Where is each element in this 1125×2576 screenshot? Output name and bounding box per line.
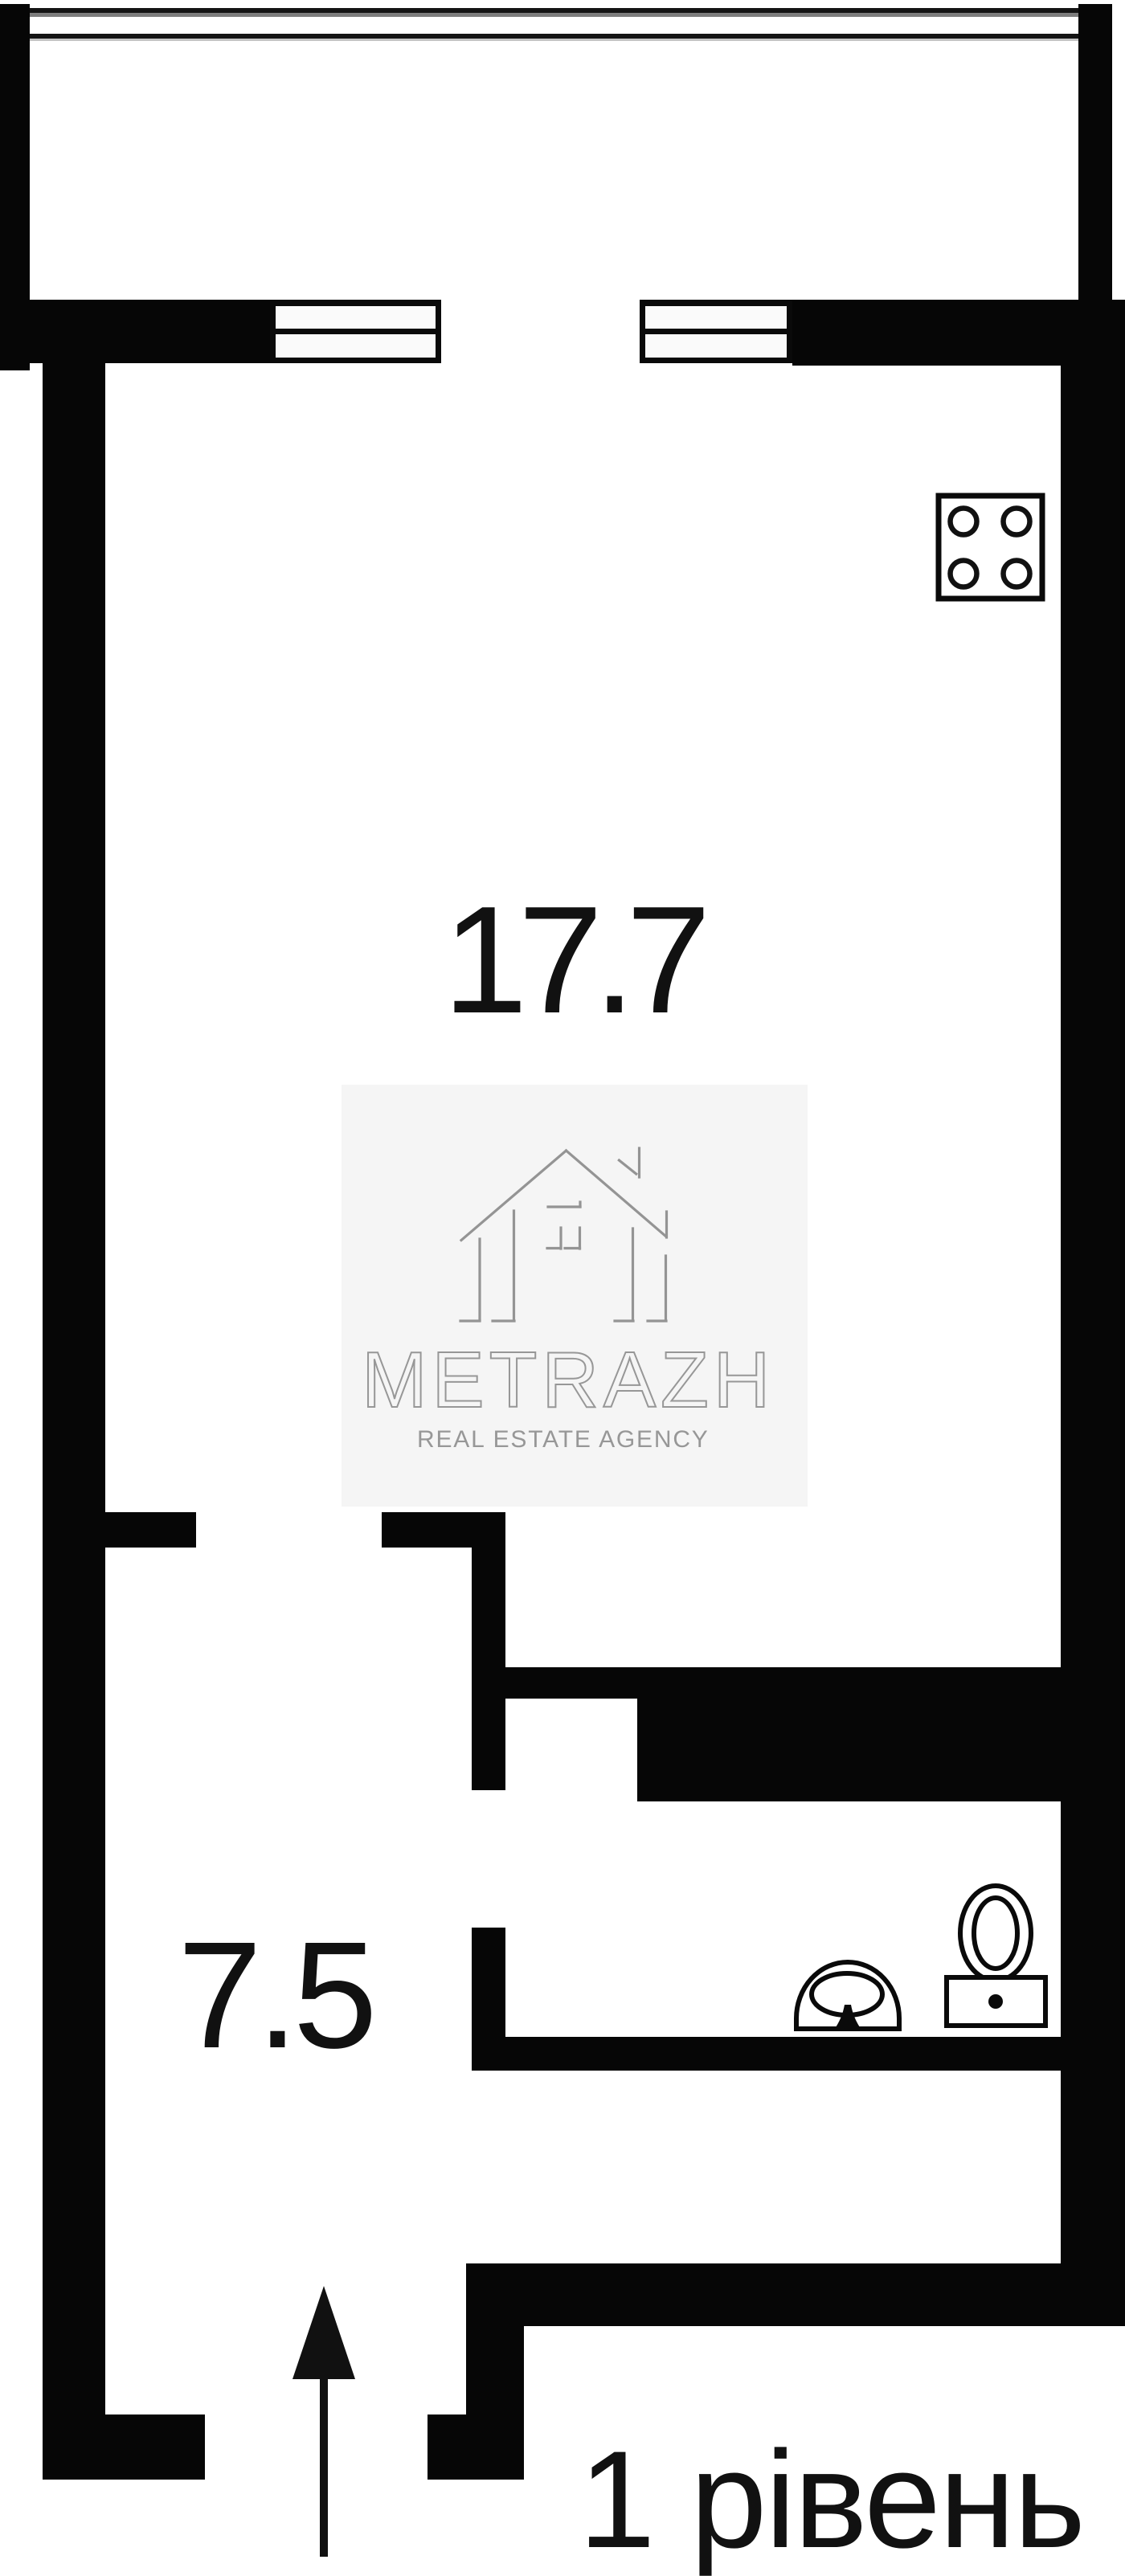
svg-text:1 рівень: 1 рівень <box>579 2423 1084 2576</box>
svg-text:17.7: 17.7 <box>443 875 704 1045</box>
svg-text:METRAZH: METRAZH <box>362 1335 775 1424</box>
svg-text:REAL ESTATE AGENCY: REAL ESTATE AGENCY <box>417 1426 710 1453</box>
svg-text:7.5: 7.5 <box>178 1911 372 2080</box>
